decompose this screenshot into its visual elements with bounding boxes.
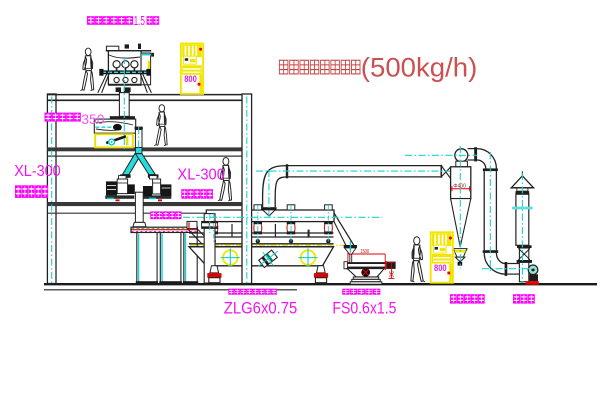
svg-text:Φ400: Φ400	[453, 184, 466, 190]
svg-text:XL-300: XL-300	[14, 163, 61, 180]
svg-text:(500kg/h): (500kg/h)	[361, 52, 478, 82]
svg-text:350: 350	[81, 112, 104, 127]
svg-text:ZLG6x0.75: ZLG6x0.75	[224, 299, 297, 317]
svg-text:345: 345	[389, 271, 395, 278]
svg-text:FS0.6x1.5: FS0.6x1.5	[332, 299, 396, 317]
svg-text:1.5: 1.5	[134, 14, 145, 28]
svg-text:XL-300: XL-300	[177, 166, 225, 183]
svg-text:1500: 1500	[360, 249, 369, 255]
